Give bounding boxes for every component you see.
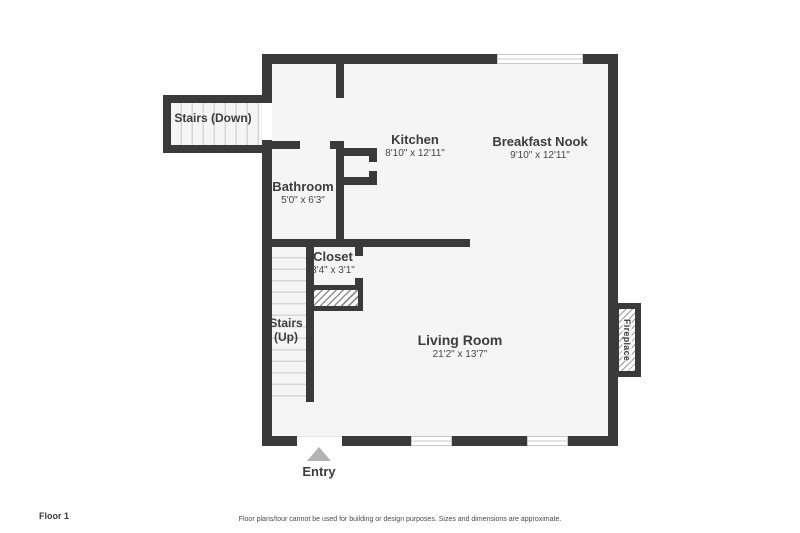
breakfast-nook-dims: 9'10" x 12'11" <box>492 149 587 163</box>
living-room-dims: 21'2" x 13'7" <box>418 348 503 362</box>
kitchen-label: Kitchen 8'10" x 12'11" <box>385 132 445 161</box>
under-stairs-hatch <box>309 285 363 311</box>
bathroom-right-wall <box>336 141 344 247</box>
fireplace-hatch: Fireplace <box>619 309 635 371</box>
kitchen-divider-wall <box>336 54 344 98</box>
right-wall <box>608 54 618 446</box>
fireplace-label: Fireplace <box>622 319 632 361</box>
bathroom-dims: 5'0" x 6'3" <box>272 194 333 208</box>
closet-door-stub <box>355 247 363 256</box>
disclaimer-text: Floor plans/tour cannot be used for buil… <box>0 516 800 523</box>
living-room-name: Living Room <box>418 332 503 348</box>
annex-top-wall <box>163 95 272 103</box>
stairs-down-doorway <box>262 103 272 140</box>
closet-name: Closet <box>311 249 355 264</box>
living-room-label: Living Room 21'2" x 13'7" <box>418 332 503 362</box>
top-window <box>497 54 583 64</box>
bottom-window-right <box>527 436 568 446</box>
kitchen-dims: 8'10" x 12'11" <box>385 147 445 161</box>
entry-label: Entry <box>302 464 335 479</box>
floor-plan-canvas: Fireplace Stairs (Down) Kitchen 8'10" x … <box>0 0 800 533</box>
bottom-wall-seg3 <box>452 436 527 446</box>
bottom-wall-seg4 <box>568 436 618 446</box>
bathroom-name: Bathroom <box>272 179 333 194</box>
bathroom-top-wall-left <box>272 141 300 149</box>
bottom-window-left <box>411 436 452 446</box>
top-wall-left <box>262 54 497 64</box>
living-room-north-wall <box>262 239 470 247</box>
closet-label: Closet 3'4" x 3'1" <box>311 249 355 278</box>
bottom-wall-seg1 <box>262 436 297 446</box>
kitchen-name: Kitchen <box>385 132 445 147</box>
bathroom-label: Bathroom 5'0" x 6'3" <box>272 179 333 208</box>
stairs-up-name-line1: Stairs <box>269 316 302 330</box>
stairs-up-name-line2: (Up) <box>269 330 302 344</box>
stairs-down-name: Stairs (Down) <box>174 111 251 125</box>
bottom-wall-seg2 <box>342 436 411 446</box>
left-wall-lower <box>262 140 272 446</box>
kitchen-peninsula-cap-bottom <box>369 171 377 185</box>
entry-arrow-icon <box>307 447 331 461</box>
entry-doorway <box>297 436 342 446</box>
breakfast-nook-label: Breakfast Nook 9'10" x 12'11" <box>492 134 587 163</box>
closet-dims: 3'4" x 3'1" <box>311 264 355 278</box>
annex-bottom-wall <box>163 145 272 153</box>
kitchen-peninsula-cap-top <box>369 148 377 162</box>
stairs-down-label: Stairs (Down) <box>174 111 251 125</box>
breakfast-nook-name: Breakfast Nook <box>492 134 587 149</box>
stairs-up-label: Stairs (Up) <box>269 316 302 344</box>
